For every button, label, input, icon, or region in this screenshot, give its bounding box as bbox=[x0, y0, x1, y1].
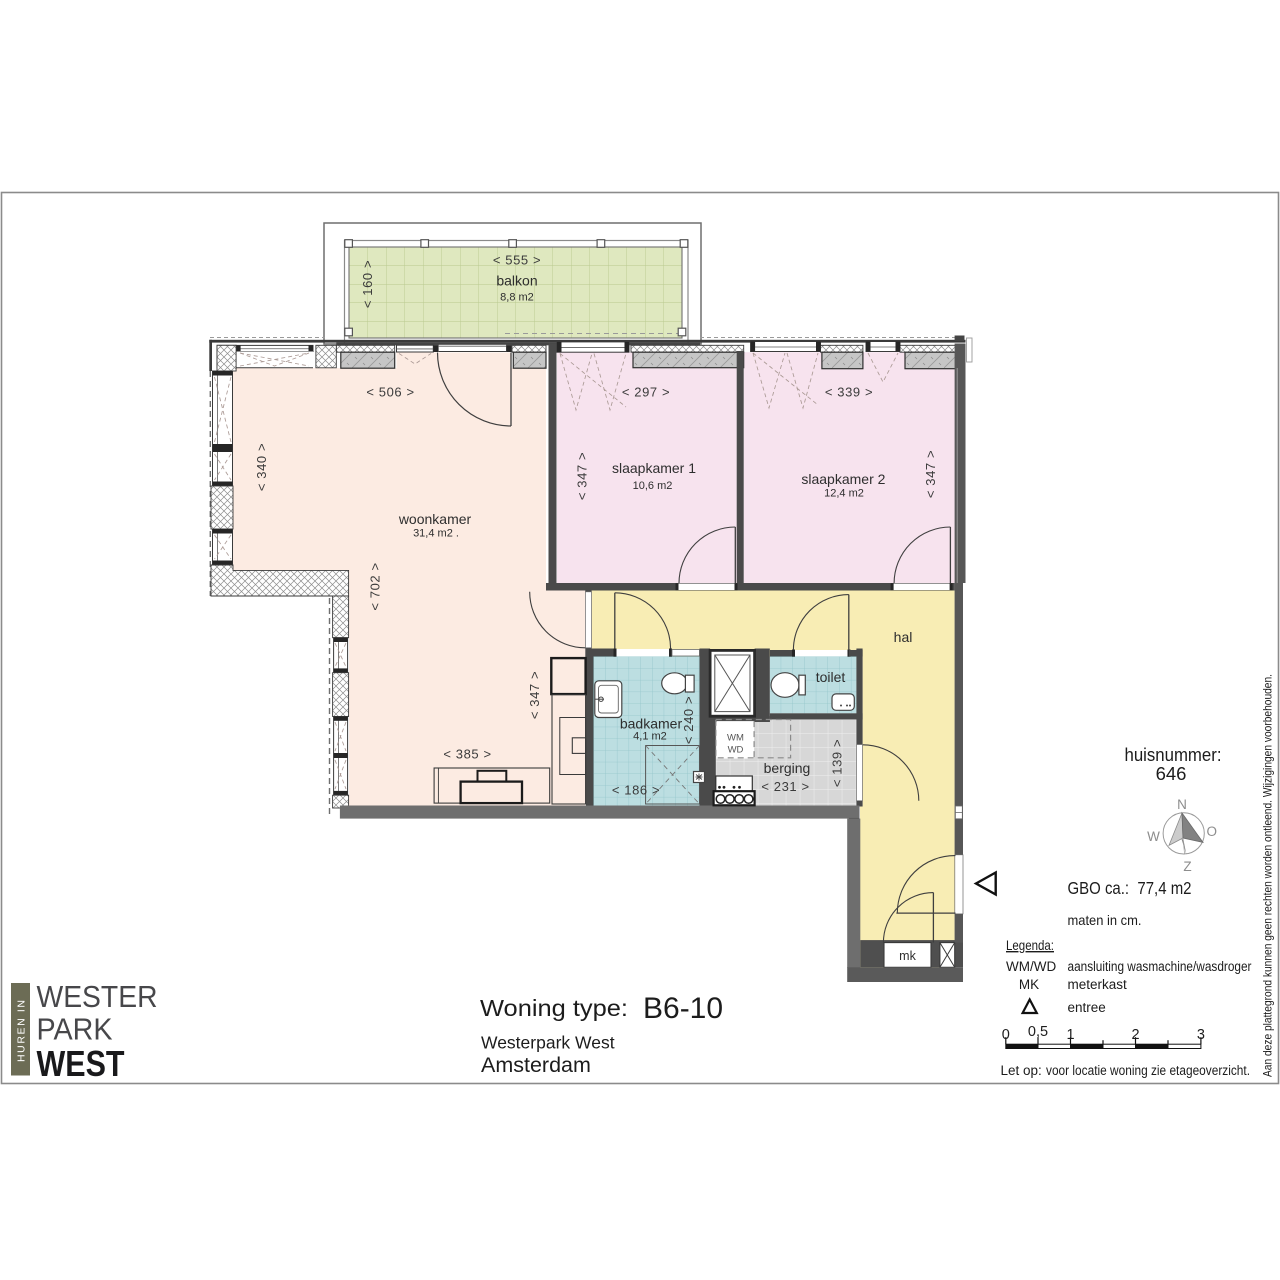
svg-text:< 339 >: < 339 > bbox=[825, 385, 873, 400]
svg-text:< 506 >: < 506 > bbox=[366, 385, 414, 400]
svg-text:PARK: PARK bbox=[37, 1012, 113, 1047]
svg-text:toilet: toilet bbox=[816, 669, 846, 685]
svg-text:WEST: WEST bbox=[37, 1043, 125, 1084]
svg-text:WM: WM bbox=[727, 733, 744, 744]
svg-text:N: N bbox=[1177, 797, 1187, 812]
svg-text:huisnummer:: huisnummer: bbox=[1125, 744, 1222, 765]
svg-text:< 340 >: < 340 > bbox=[254, 443, 269, 491]
svg-text:< 297 >: < 297 > bbox=[622, 385, 670, 400]
svg-text:GBO ca.: 77,4 m2: GBO ca.: 77,4 m2 bbox=[1068, 878, 1192, 898]
svg-text:31,4 m2 .: 31,4 m2 . bbox=[413, 528, 459, 540]
svg-text:Legenda:: Legenda: bbox=[1006, 937, 1054, 953]
svg-text:< 347 >: < 347 > bbox=[575, 452, 590, 500]
svg-text:646: 646 bbox=[1156, 763, 1187, 784]
svg-text:hal: hal bbox=[894, 629, 913, 645]
svg-text:< 186 >: < 186 > bbox=[612, 783, 660, 798]
svg-text:woonkamer: woonkamer bbox=[398, 511, 472, 527]
svg-text:< 555 >: < 555 > bbox=[493, 253, 541, 268]
svg-text:mk: mk bbox=[899, 949, 916, 963]
svg-text:1: 1 bbox=[1066, 1027, 1074, 1043]
svg-text:B6-10: B6-10 bbox=[643, 992, 723, 1025]
svg-text:0,5: 0,5 bbox=[1028, 1024, 1048, 1040]
svg-text:Woning type:: Woning type: bbox=[480, 995, 628, 1021]
svg-text:10,6 m2: 10,6 m2 bbox=[633, 480, 673, 492]
svg-text:< 347 >: < 347 > bbox=[923, 450, 938, 498]
svg-text:< 231 >: < 231 > bbox=[761, 779, 809, 794]
svg-text:Westerpark West: Westerpark West bbox=[481, 1033, 615, 1053]
svg-text:W: W bbox=[1147, 829, 1160, 844]
svg-text:Let op:: Let op: bbox=[1001, 1063, 1042, 1078]
svg-text:meterkast: meterkast bbox=[1068, 977, 1128, 992]
svg-text:WD: WD bbox=[728, 745, 744, 756]
svg-text:Aan deze plattegrond kunnen ge: Aan deze plattegrond kunnen geen rechten… bbox=[1261, 674, 1275, 1077]
svg-text:WM/WD: WM/WD bbox=[1006, 959, 1056, 974]
svg-text:3: 3 bbox=[1197, 1027, 1205, 1043]
svg-text:balkon: balkon bbox=[496, 273, 537, 289]
svg-text:badkamer: badkamer bbox=[620, 716, 683, 732]
svg-text:8,8 m2: 8,8 m2 bbox=[500, 292, 534, 304]
svg-text:< 702 >: < 702 > bbox=[368, 562, 383, 610]
svg-text:Z: Z bbox=[1183, 859, 1191, 874]
svg-text:12,4 m2: 12,4 m2 bbox=[824, 488, 864, 500]
svg-text:entree: entree bbox=[1068, 1000, 1106, 1015]
svg-text:0: 0 bbox=[1002, 1027, 1010, 1043]
svg-text:< 385 >: < 385 > bbox=[443, 747, 491, 762]
svg-text:< 139 >: < 139 > bbox=[830, 739, 845, 787]
svg-text:maten in cm.: maten in cm. bbox=[1068, 912, 1142, 928]
svg-text:slaapkamer 2: slaapkamer 2 bbox=[801, 471, 885, 487]
svg-text:2: 2 bbox=[1131, 1027, 1139, 1043]
svg-text:< 160 >: < 160 > bbox=[360, 260, 375, 308]
svg-text:MK: MK bbox=[1019, 977, 1039, 992]
svg-text:WESTER: WESTER bbox=[37, 979, 158, 1014]
svg-text:berging: berging bbox=[764, 760, 811, 776]
svg-text:< 347 >: < 347 > bbox=[527, 671, 542, 719]
svg-text:< 240 >: < 240 > bbox=[681, 696, 696, 744]
svg-text:Amsterdam: Amsterdam bbox=[481, 1053, 591, 1077]
svg-text:aansluiting wasmachine/wasdrog: aansluiting wasmachine/wasdroger bbox=[1068, 959, 1252, 974]
svg-text:voor locatie woning zie etageo: voor locatie woning zie etageoverzicht. bbox=[1046, 1063, 1250, 1078]
svg-text:HUREN IN: HUREN IN bbox=[16, 998, 28, 1062]
svg-text:4,1 m2: 4,1 m2 bbox=[633, 731, 667, 743]
svg-text:O: O bbox=[1207, 824, 1218, 839]
svg-text:slaapkamer 1: slaapkamer 1 bbox=[612, 460, 696, 476]
